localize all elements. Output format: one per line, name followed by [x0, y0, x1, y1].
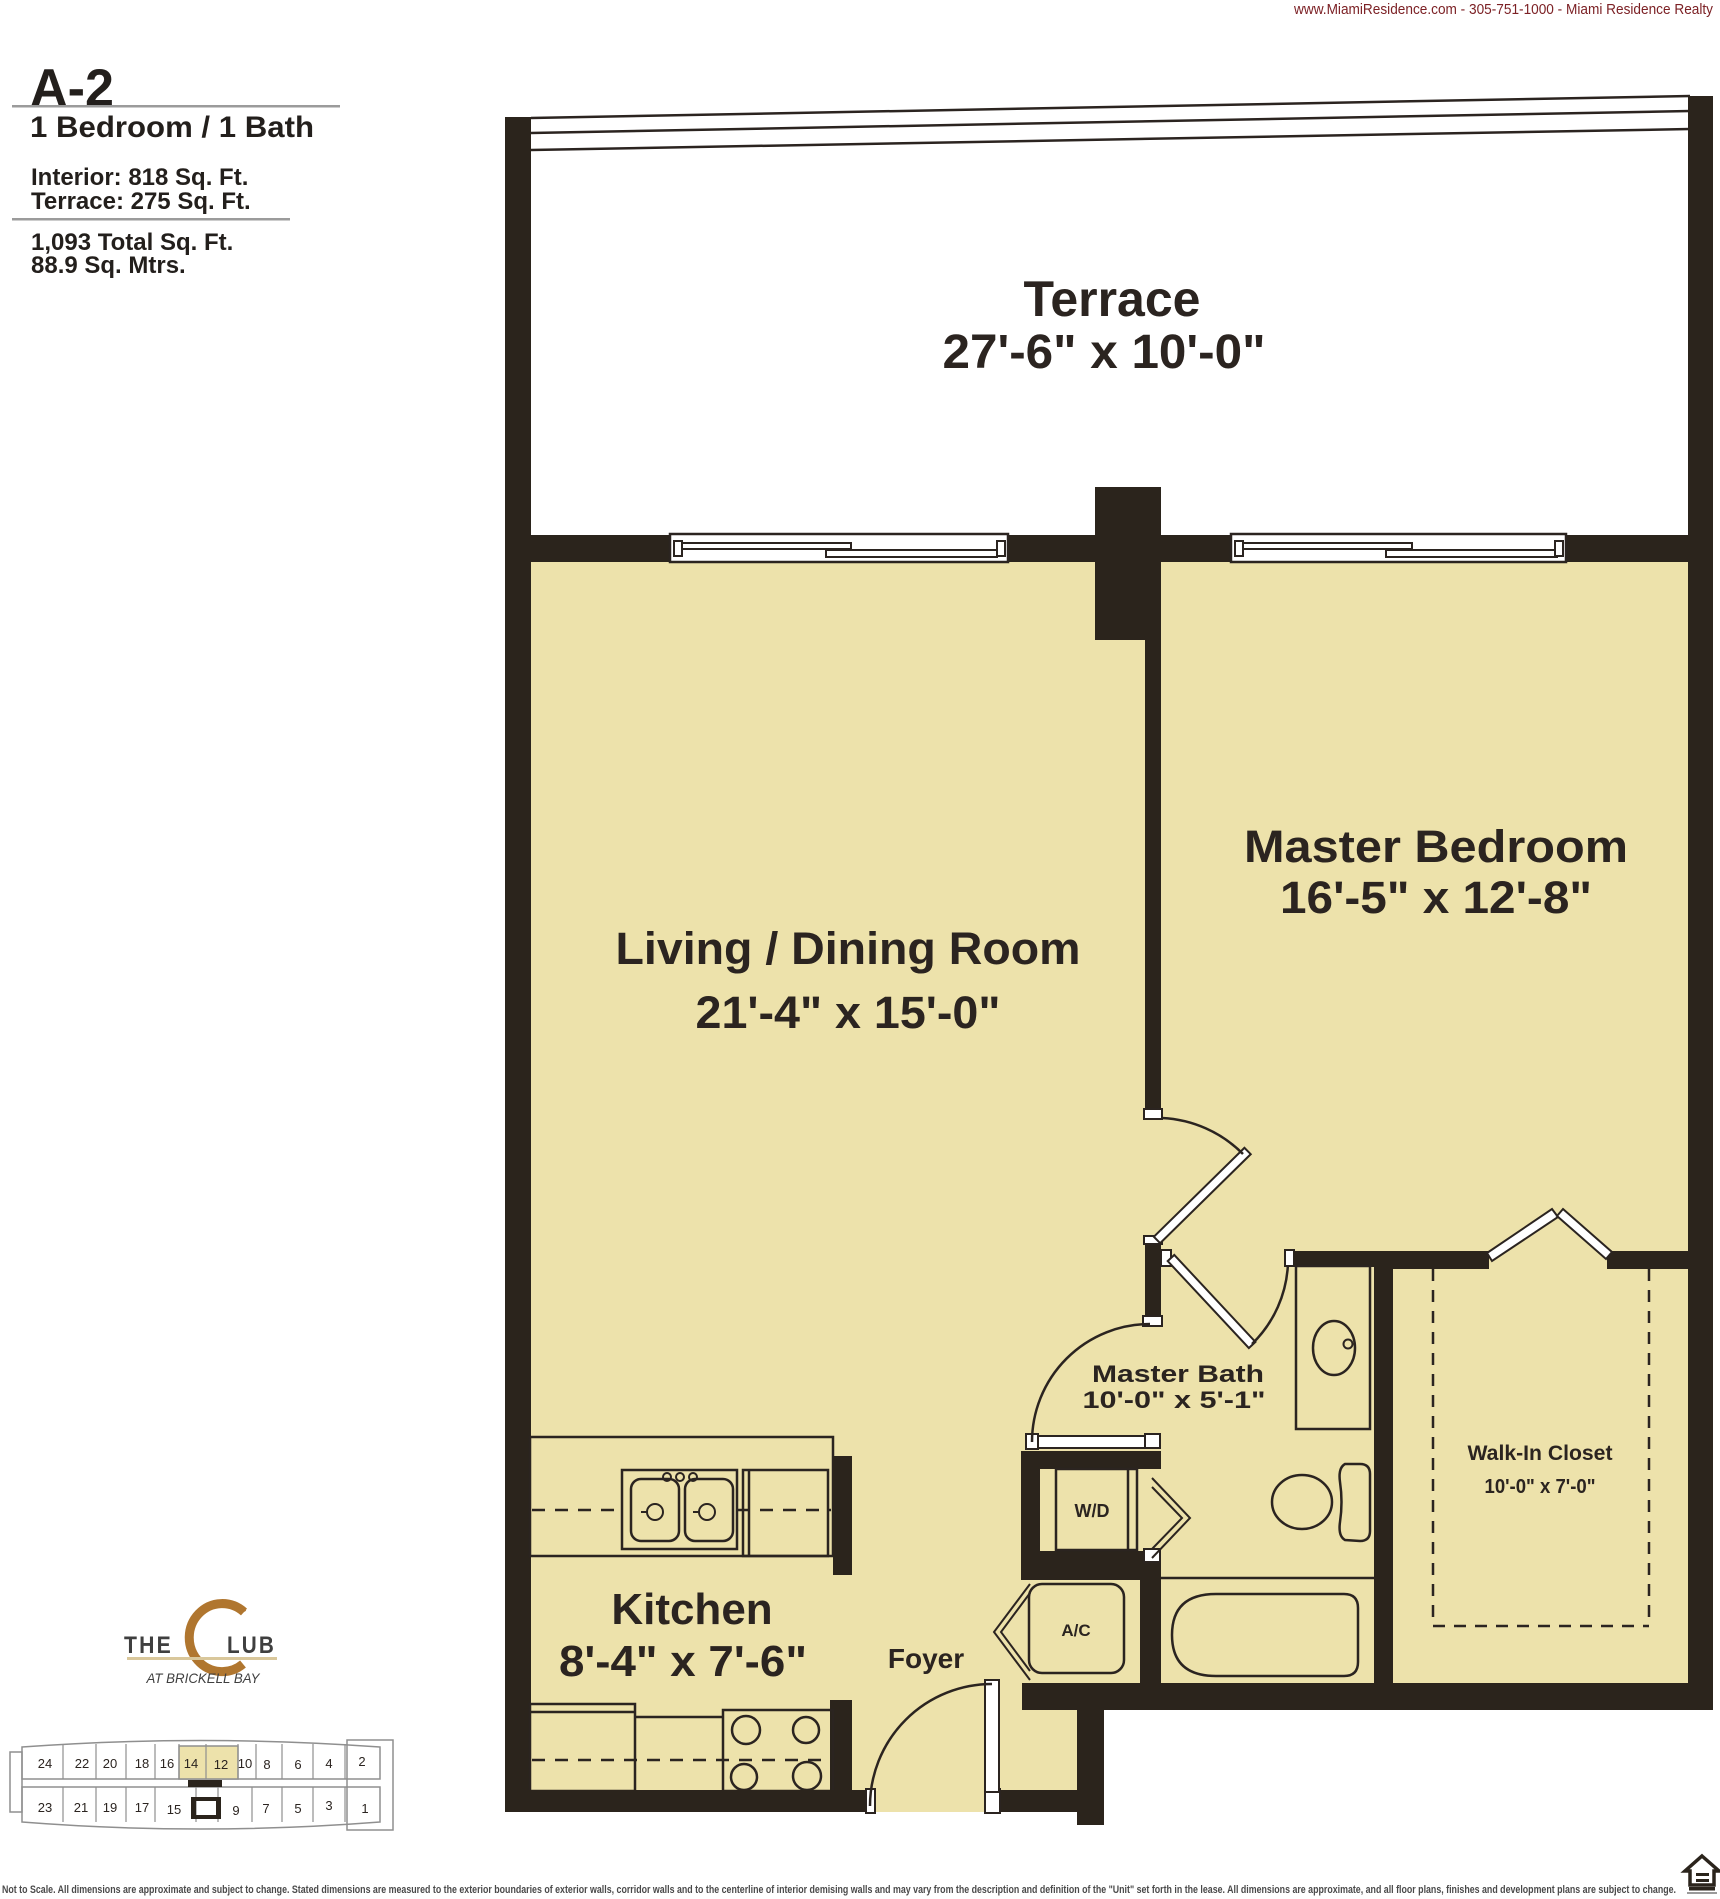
- svg-text:23: 23: [38, 1800, 52, 1815]
- svg-text:16: 16: [160, 1756, 174, 1771]
- svg-text:Not to Scale. All dimensions a: Not to Scale. All dimensions are approxi…: [2, 1884, 1676, 1896]
- svg-text:1: 1: [361, 1801, 368, 1816]
- svg-text:Interior: 818 Sq. Ft.: Interior: 818 Sq. Ft.: [31, 164, 248, 191]
- svg-text:10'-0" x 7'-0": 10'-0" x 7'-0": [1485, 1476, 1596, 1498]
- svg-text:W/D: W/D: [1075, 1501, 1110, 1521]
- svg-text:8: 8: [263, 1757, 270, 1772]
- svg-text:Kitchen: Kitchen: [611, 1585, 772, 1634]
- svg-text:THE: THE: [124, 1632, 173, 1659]
- svg-text:10: 10: [238, 1756, 252, 1771]
- svg-text:15: 15: [167, 1802, 181, 1817]
- svg-text:5: 5: [294, 1801, 301, 1816]
- svg-text:4: 4: [325, 1756, 332, 1771]
- svg-text:88.9 Sq. Mtrs.: 88.9 Sq. Mtrs.: [31, 252, 186, 279]
- svg-text:16'-5" x 12'-8": 16'-5" x 12'-8": [1280, 872, 1592, 923]
- svg-text:14: 14: [184, 1756, 198, 1771]
- svg-text:8'-4" x 7'-6": 8'-4" x 7'-6": [559, 1637, 807, 1686]
- svg-text:www.MiamiResidence.com - 305-7: www.MiamiResidence.com - 305-751-1000 - …: [1293, 2, 1714, 18]
- svg-text:18: 18: [135, 1756, 149, 1771]
- svg-text:Living / Dining Room: Living / Dining Room: [616, 923, 1081, 974]
- svg-text:17: 17: [135, 1800, 149, 1815]
- svg-text:9: 9: [232, 1803, 239, 1818]
- svg-text:AT BRICKELL BAY: AT BRICKELL BAY: [146, 1670, 262, 1686]
- svg-text:A/C: A/C: [1061, 1621, 1090, 1640]
- svg-text:21'-4" x 15'-0": 21'-4" x 15'-0": [696, 987, 1001, 1038]
- svg-text:1 Bedroom / 1 Bath: 1 Bedroom / 1 Bath: [30, 111, 314, 144]
- svg-text:24: 24: [38, 1756, 52, 1771]
- svg-text:19: 19: [103, 1800, 117, 1815]
- svg-text:22: 22: [75, 1756, 89, 1771]
- svg-text:12: 12: [214, 1757, 228, 1772]
- svg-text:27'-6" x 10'-0": 27'-6" x 10'-0": [943, 326, 1266, 379]
- svg-text:Walk-In Closet: Walk-In Closet: [1468, 1442, 1613, 1465]
- svg-text:20: 20: [103, 1756, 117, 1771]
- svg-text:Foyer: Foyer: [888, 1643, 964, 1674]
- svg-text:Master Bath: Master Bath: [1092, 1361, 1264, 1388]
- svg-text:Terrace: 275 Sq. Ft.: Terrace: 275 Sq. Ft.: [31, 188, 251, 215]
- svg-text:21: 21: [74, 1800, 88, 1815]
- svg-text:3: 3: [325, 1798, 332, 1813]
- svg-text:A-2: A-2: [30, 59, 114, 118]
- svg-text:6: 6: [294, 1757, 301, 1772]
- svg-text:LUB: LUB: [227, 1632, 276, 1659]
- svg-text:7: 7: [262, 1801, 269, 1816]
- svg-text:2: 2: [358, 1754, 365, 1769]
- svg-text:Terrace: Terrace: [1024, 271, 1201, 327]
- svg-text:Master Bedroom: Master Bedroom: [1244, 821, 1628, 872]
- svg-text:10'-0" x 5'-1": 10'-0" x 5'-1": [1083, 1387, 1266, 1414]
